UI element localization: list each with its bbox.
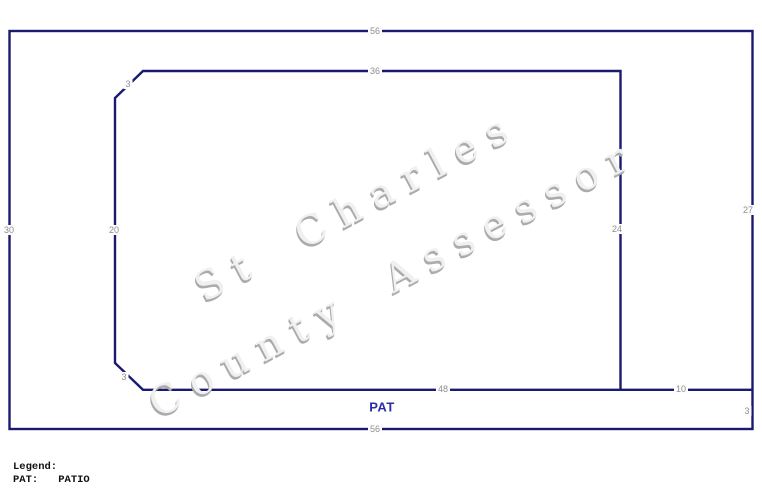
dim-label-inner-left: 20 (107, 225, 121, 235)
dim-label-chamfer-bottom-left: 3 (119, 372, 128, 382)
dim-label-outer-right-upper: 27 (741, 205, 755, 215)
legend-title: Legend: (13, 461, 90, 474)
legend-entry-code: PAT: (13, 474, 38, 486)
dim-label-inner-right: 24 (610, 224, 624, 234)
dim-label-inner-bottom: 48 (436, 384, 450, 394)
dim-label-outer-right-lower: 3 (742, 406, 751, 416)
legend: Legend: PAT:PATIO (13, 461, 90, 487)
dim-label-outer-left: 30 (2, 225, 16, 235)
legend-entry: PAT:PATIO (13, 474, 90, 487)
dim-label-inner-bottom-right: 10 (674, 384, 688, 394)
sketch-canvas: St Charles County Assessor 56 36 3 30 20… (0, 0, 762, 501)
dim-label-inner-top: 36 (368, 66, 382, 76)
legend-entry-label: PATIO (58, 474, 90, 486)
dim-label-outer-top: 56 (368, 26, 382, 36)
area-code-label: PAT (369, 400, 395, 415)
dim-label-chamfer-top-left: 3 (123, 79, 132, 89)
dim-label-outer-bottom: 56 (368, 424, 382, 434)
